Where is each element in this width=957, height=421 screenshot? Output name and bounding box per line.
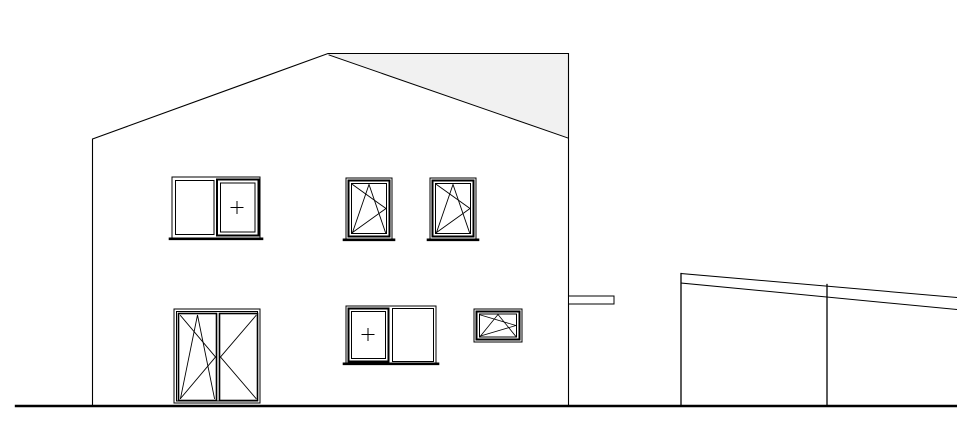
door-leaf-right — [220, 314, 258, 401]
turn-symbol-lower — [481, 326, 517, 337]
right-leaf-turn-upper — [221, 316, 257, 358]
sash-inner — [480, 314, 517, 337]
fixed-pane — [176, 181, 215, 235]
sash-inner — [352, 184, 387, 234]
window-upper-left — [170, 177, 262, 239]
turn-symbol-upper — [437, 185, 471, 209]
turn-symbol-upper — [353, 185, 387, 209]
house — [93, 54, 569, 407]
door-leaf-left — [179, 314, 217, 401]
tilt-symbol — [481, 315, 516, 337]
window-frame — [346, 178, 392, 239]
left-leaf-turn-upper — [181, 316, 216, 358]
carport-roof-bottom-edge — [681, 283, 957, 310]
carport-roof-top-edge — [681, 274, 957, 298]
canopy-beam — [569, 296, 615, 304]
window-upper-right — [428, 178, 478, 240]
elevation-drawing-canvas — [0, 0, 957, 421]
tilt-symbol — [437, 185, 470, 233]
left-leaf-tilt-symbol — [181, 315, 215, 399]
sash-inner — [436, 184, 471, 234]
turn-symbol-upper — [481, 315, 517, 326]
fixed-pane — [393, 309, 434, 362]
window-frame — [346, 306, 436, 363]
window-ground-middle — [344, 306, 438, 364]
sash-outer — [349, 181, 390, 237]
tilt-symbol — [353, 185, 386, 233]
carport — [681, 274, 957, 407]
window-frame — [430, 178, 476, 239]
right-leaf-turn-lower — [221, 357, 257, 399]
entrance-door — [174, 309, 260, 403]
sash-outer — [433, 181, 474, 237]
window-ground-small — [474, 309, 522, 342]
window-upper-middle — [344, 178, 394, 240]
house-elevation-svg — [0, 0, 957, 421]
